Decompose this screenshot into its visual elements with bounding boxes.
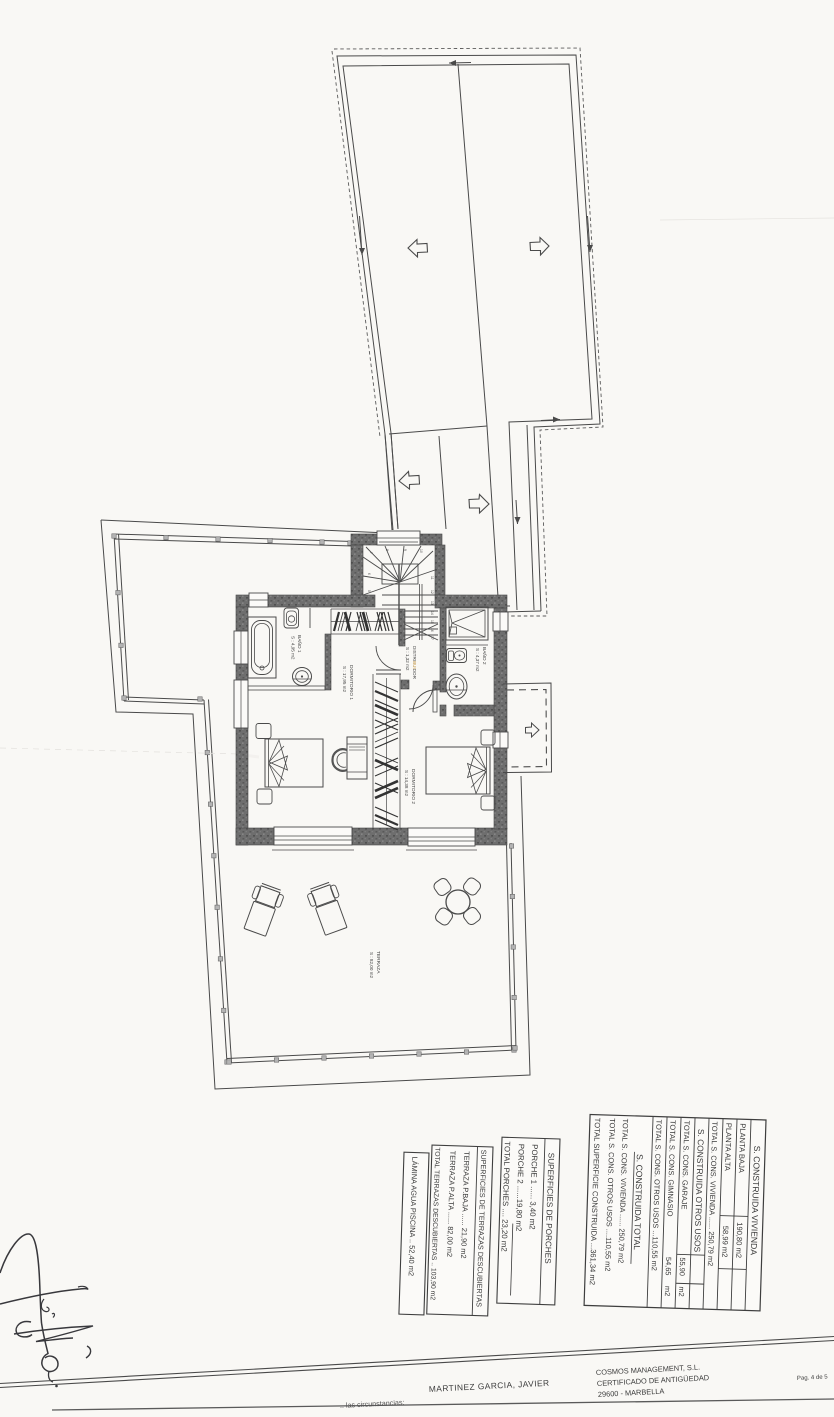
svg-text:7: 7 — [369, 552, 373, 554]
svg-text:14: 14 — [430, 611, 434, 615]
svg-text:190,80 m2: 190,80 m2 — [734, 1222, 744, 1258]
svg-text:10: 10 — [419, 549, 423, 553]
svg-text:S : 82,00 m2: S : 82,00 m2 — [369, 952, 374, 978]
svg-text:58,99 m2: 58,99 m2 — [720, 1226, 730, 1258]
svg-text:S : 17,95 m2: S : 17,95 m2 — [342, 666, 347, 692]
svg-text:PLANTA ALTA: PLANTA ALTA — [723, 1123, 734, 1172]
svg-text:m2: m2 — [663, 1286, 672, 1297]
svg-text:16: 16 — [430, 628, 434, 632]
svg-text:13: 13 — [430, 601, 434, 605]
svg-text:PLANTA BAJA: PLANTA BAJA — [737, 1123, 748, 1174]
svg-text:DISTRIBUIDOR: DISTRIBUIDOR — [412, 646, 417, 680]
svg-text:8: 8 — [385, 549, 389, 551]
svg-text:S : 4,95 m2: S : 4,95 m2 — [291, 636, 296, 660]
svg-text:S : 14,38 m2: S : 14,38 m2 — [404, 770, 409, 796]
svg-text:TERRAZA: TERRAZA — [375, 951, 381, 974]
svg-text:5: 5 — [367, 590, 371, 592]
svg-text:15: 15 — [430, 620, 434, 624]
svg-text:54,65: 54,65 — [664, 1257, 674, 1276]
svg-text:9: 9 — [403, 549, 407, 551]
svg-text:12: 12 — [430, 590, 434, 594]
svg-text:S : 1,32 m2: S : 1,32 m2 — [405, 647, 410, 671]
svg-text:6: 6 — [367, 573, 371, 575]
svg-text:11: 11 — [430, 576, 434, 580]
svg-text:55,90: 55,90 — [678, 1257, 688, 1276]
svg-text:DORMITORIO 1: DORMITORIO 1 — [348, 665, 354, 700]
svg-text:17: 17 — [430, 636, 434, 640]
svg-text:S : 4,37 m2: S : 4,37 m2 — [475, 648, 480, 672]
svg-text:DORMITORIO 2: DORMITORIO 2 — [410, 769, 416, 804]
svg-text:m2: m2 — [677, 1286, 686, 1297]
